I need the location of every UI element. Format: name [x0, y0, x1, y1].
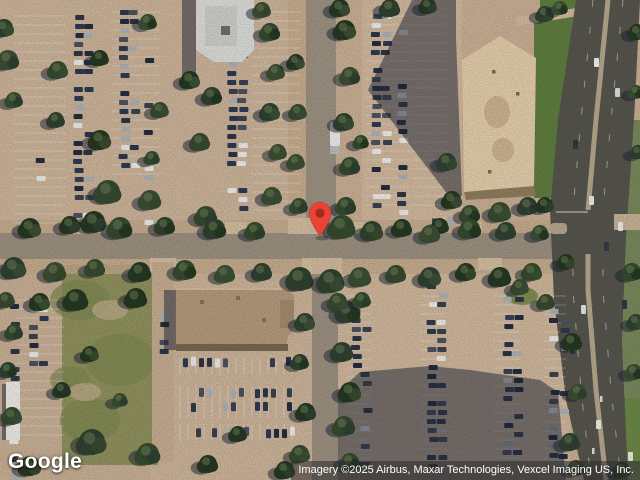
map-viewport: Google Imagery ©2025 Airbus, Maxar Techn… [0, 0, 640, 480]
google-logo[interactable]: Google [8, 450, 82, 474]
pin-dot [315, 208, 324, 217]
pin-body [309, 202, 331, 236]
map-pin-icon[interactable] [307, 200, 333, 242]
map-attribution: Imagery ©2025 Airbus, Maxar Technologies… [291, 461, 640, 480]
pin-shadow [316, 236, 329, 241]
